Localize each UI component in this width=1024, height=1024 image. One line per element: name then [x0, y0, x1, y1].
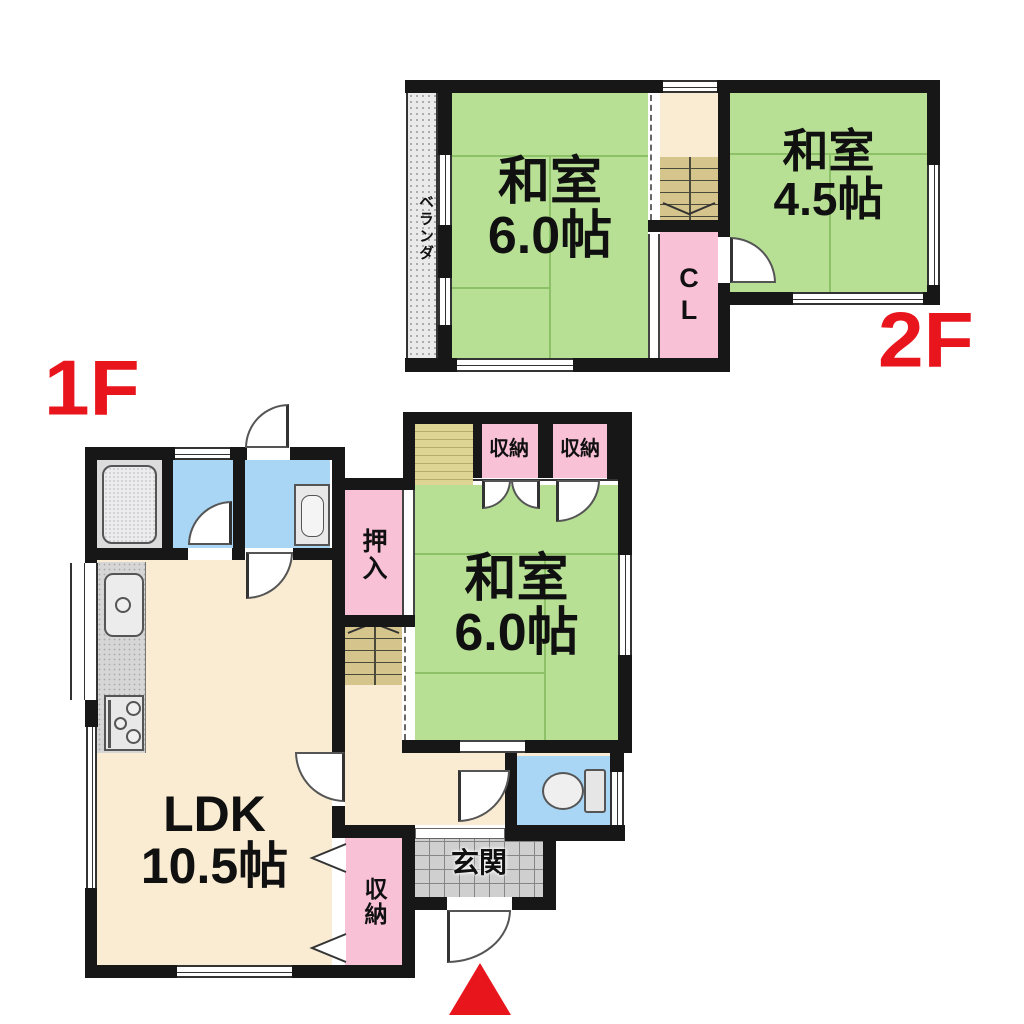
wall [927, 80, 940, 165]
pane-line [457, 365, 573, 366]
door-opening [188, 548, 232, 560]
veranda-label: ベランダ [411, 153, 433, 303]
window [438, 155, 452, 225]
room-label-ldk: LDK 10.5帖 [97, 788, 332, 892]
burner [114, 717, 127, 730]
closet-2f: CL [660, 232, 718, 358]
wall [402, 740, 460, 753]
wall [332, 447, 345, 752]
window [663, 80, 717, 93]
wall [345, 615, 415, 627]
door-opening [247, 447, 290, 460]
wall [232, 548, 245, 560]
stair-opening-line [650, 95, 660, 220]
wall [85, 700, 98, 727]
room-name: 和室 [452, 155, 648, 209]
pane-line [663, 87, 717, 88]
bathtub-icon [102, 465, 157, 544]
wall [525, 740, 632, 753]
stair-hall-2f [660, 93, 718, 157]
wall [717, 80, 940, 93]
storage-label: 収納 [480, 439, 538, 460]
wall [332, 806, 345, 825]
stove-edge [108, 700, 111, 748]
window [618, 555, 632, 655]
pane-line [934, 165, 935, 285]
entrance-step [415, 828, 505, 839]
toilet-tank [584, 769, 606, 813]
window [438, 278, 452, 325]
vanity-icon [294, 484, 330, 546]
tatami-seam [415, 672, 544, 674]
entrance-arrow-icon [449, 963, 511, 1015]
wall [505, 753, 517, 828]
window [175, 447, 230, 460]
pane-line [177, 972, 292, 973]
pane-line [92, 727, 93, 888]
sink-drain [115, 597, 131, 613]
floor-plan: ベランダ CL [0, 0, 1024, 1024]
wall [85, 965, 177, 978]
genkan-label: 玄関 [420, 848, 538, 877]
pane-line [445, 155, 446, 225]
wall [648, 220, 730, 232]
pane-line [617, 772, 618, 825]
bay-window [70, 563, 98, 700]
wall [618, 655, 632, 753]
wall [403, 412, 415, 490]
pane-line [445, 278, 446, 325]
veranda: ベランダ [406, 91, 438, 360]
wall [538, 424, 553, 478]
wall [233, 458, 245, 548]
burner [126, 729, 141, 744]
floor-label-1f: 1F [44, 350, 140, 428]
room-size: 10.5帖 [97, 840, 332, 892]
window [610, 772, 624, 825]
room-size: 6.0帖 [415, 606, 618, 660]
room-label-washitsu6-2f: 和室 6.0帖 [452, 155, 648, 263]
wall [403, 412, 632, 424]
storage-top-left: 収納 [480, 424, 538, 478]
entrance-door-swing-icon [447, 910, 511, 963]
burner [126, 701, 141, 716]
kitchen-sink-icon [104, 573, 144, 637]
door-opening [718, 237, 730, 283]
wood-floor-nook [415, 424, 473, 485]
wall [293, 548, 345, 560]
room-name: 和室 [730, 128, 927, 176]
pane-line [625, 555, 626, 655]
wall [718, 292, 793, 305]
wall [85, 447, 175, 460]
wall [402, 825, 415, 978]
wall [505, 825, 625, 841]
wall [405, 80, 663, 93]
room-label-washitsu6-1f: 和室 6.0帖 [415, 552, 618, 660]
storage-label: 収納 [553, 439, 607, 460]
pane-line [84, 563, 85, 700]
floor-label-2f: 2F [878, 302, 974, 380]
sliding-door-icon [648, 234, 660, 358]
wall [718, 93, 730, 237]
wall [438, 225, 452, 278]
wall [332, 825, 415, 838]
door-swing-icon [245, 404, 289, 448]
storage-ldk: 収納 [345, 838, 402, 965]
room-name: LDK [97, 788, 332, 840]
wall [438, 325, 452, 358]
wall [607, 424, 618, 480]
window [457, 358, 573, 372]
room-size: 6.0帖 [452, 209, 648, 263]
wall [543, 840, 556, 910]
room-label-washitsu45-2f: 和室 4.5帖 [730, 128, 927, 224]
sliding-door-icon [460, 740, 525, 753]
sliding-door-icon [402, 490, 415, 615]
window [86, 727, 97, 888]
pane-line [175, 454, 230, 455]
toilet-icon [542, 772, 584, 810]
storage-label: 収納 [361, 870, 385, 934]
window [177, 965, 292, 978]
wall [85, 548, 188, 560]
wall [610, 753, 624, 772]
window [927, 165, 940, 285]
wall [438, 93, 452, 155]
wall [415, 897, 447, 910]
wall [473, 424, 482, 478]
hallway [345, 685, 402, 825]
closet-label: CL [677, 260, 703, 330]
stair-opening-line [404, 627, 415, 740]
room-name: 和室 [415, 552, 618, 606]
vanity-basin [301, 495, 324, 537]
wall [618, 412, 632, 555]
wall [162, 460, 173, 548]
room-size: 4.5帖 [730, 176, 927, 224]
storage-top-right: 収納 [553, 424, 607, 478]
oshiire-label: 押入 [360, 515, 386, 595]
tatami-seam [452, 287, 549, 289]
wall [85, 447, 97, 563]
stairs-direction-icon [660, 200, 718, 218]
stove-icon [104, 695, 144, 751]
